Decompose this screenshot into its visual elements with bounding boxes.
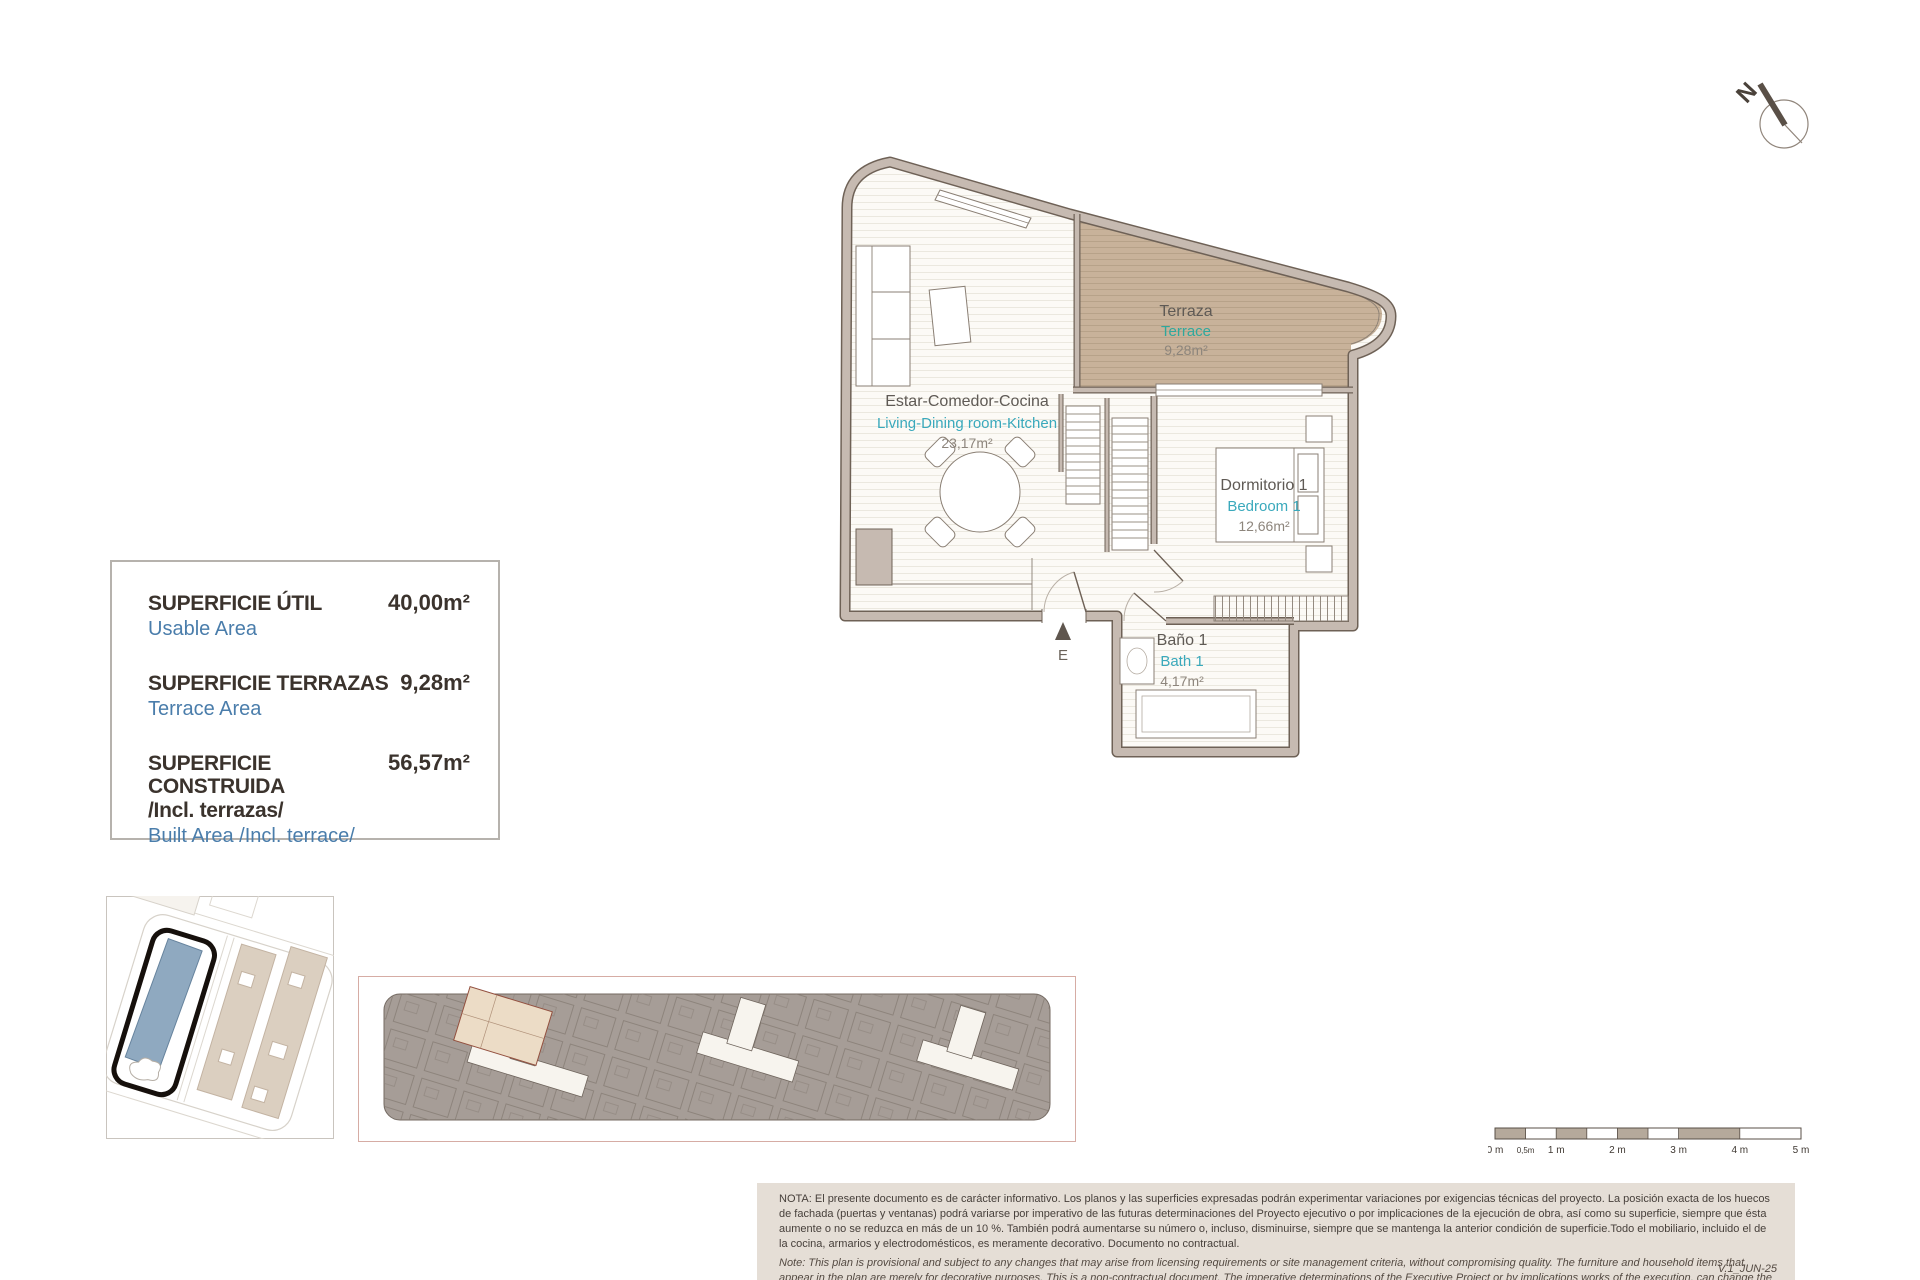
nightstand: [1306, 416, 1332, 442]
scale-label: 2 m: [1609, 1145, 1626, 1156]
scale-bar: 0 m 0,5m 1 m 2 m 3 m 4 m 5 m: [1488, 1118, 1818, 1164]
area-summary-box: SUPERFICIE ÚTIL 40,00m² Usable Area SUPE…: [110, 560, 500, 840]
usable-value: 40,00m²: [388, 590, 470, 616]
terrace-name-en: Terrace: [1161, 323, 1211, 340]
key-plan: [358, 976, 1076, 1142]
scale-bar-labels: 0 m 0,5m 1 m 2 m 3 m 4 m 5 m: [1488, 1145, 1809, 1156]
bath-area: 4,17m²: [1160, 673, 1204, 689]
room-label-bath: Baño 1 Bath 1 4,17m²: [1157, 632, 1208, 689]
built-label-en: Built Area /Incl. terrace/: [148, 824, 470, 848]
entrance-arrow-icon: [1055, 622, 1071, 640]
wardrobe: [1214, 596, 1348, 621]
note-text-es: NOTA: El presente documento es de caráct…: [779, 1192, 1777, 1252]
north-label: N: [1731, 77, 1763, 108]
room-label-terrace: Terraza Terrace 9,28m²: [1159, 303, 1212, 358]
floor-plan-page: N: [0, 0, 1920, 1280]
scale-label: 0,5m: [1517, 1146, 1535, 1155]
usable-label-es: SUPERFICIE ÚTIL: [148, 592, 322, 615]
floor-plan-drawing: E Estar-Comedor-Cocina Living-Dining roo…: [820, 140, 1480, 800]
shower: [1136, 690, 1256, 738]
compass-needle-tail: [1785, 125, 1802, 143]
bedroom-window: [1156, 384, 1322, 396]
area-row-built: SUPERFICIE CONSTRUIDA 56,57m² /Incl. ter…: [148, 750, 470, 848]
living-area: 23,17m²: [941, 435, 993, 451]
usable-label-en: Usable Area: [148, 617, 470, 641]
scale-label: 5 m: [1793, 1145, 1810, 1156]
terrace-floor: [1077, 218, 1382, 390]
bath-name-en: Bath 1: [1160, 653, 1203, 670]
nightstand: [1306, 546, 1332, 572]
compass-needle: [1760, 84, 1785, 125]
bedroom-name-en: Bedroom 1: [1227, 498, 1300, 515]
washbasin: [1120, 638, 1154, 684]
entrance-label: E: [1058, 647, 1068, 664]
legal-note-box: NOTA: El presente documento es de caráct…: [757, 1183, 1795, 1280]
terrace-value: 9,28m²: [400, 670, 470, 696]
bath-name-es: Baño 1: [1157, 632, 1208, 649]
terrace-area: 9,28m²: [1164, 342, 1208, 358]
scale-label: 3 m: [1670, 1145, 1687, 1156]
north-arrow: N: [1700, 58, 1820, 178]
built-label-es2: /Incl. terrazas/: [148, 798, 470, 823]
terrace-label-en: Terrace Area: [148, 697, 470, 721]
scale-bar-segments: [1495, 1128, 1801, 1139]
sofa: [856, 246, 910, 386]
area-row-terrace: SUPERFICIE TERRAZAS 9,28m² Terrace Area: [148, 670, 470, 721]
entrance-marker: E: [1055, 622, 1071, 664]
version-label: V.1_JUN-25: [1718, 1263, 1777, 1275]
site-location-map: [106, 896, 334, 1139]
bedroom-area: 12,66m²: [1238, 518, 1290, 534]
built-label-es: SUPERFICIE CONSTRUIDA: [148, 752, 388, 798]
scale-label: 0 m: [1488, 1145, 1503, 1156]
living-name-es: Estar-Comedor-Cocina: [885, 393, 1049, 410]
scale-label: 1 m: [1548, 1145, 1565, 1156]
area-row-usable: SUPERFICIE ÚTIL 40,00m² Usable Area: [148, 590, 470, 641]
bedroom-name-es: Dormitorio 1: [1220, 477, 1307, 494]
dining-table: [923, 435, 1037, 549]
note-text-en: Note: This plan is provisional and subje…: [779, 1256, 1777, 1280]
living-name-en: Living-Dining room-Kitchen: [877, 415, 1057, 432]
terrace-label-es: SUPERFICIE TERRAZAS: [148, 672, 389, 695]
built-value: 56,57m²: [388, 750, 470, 776]
terrace-name-es: Terraza: [1159, 303, 1212, 320]
scale-label: 4 m: [1731, 1145, 1748, 1156]
tv-cabinet: [929, 286, 971, 345]
